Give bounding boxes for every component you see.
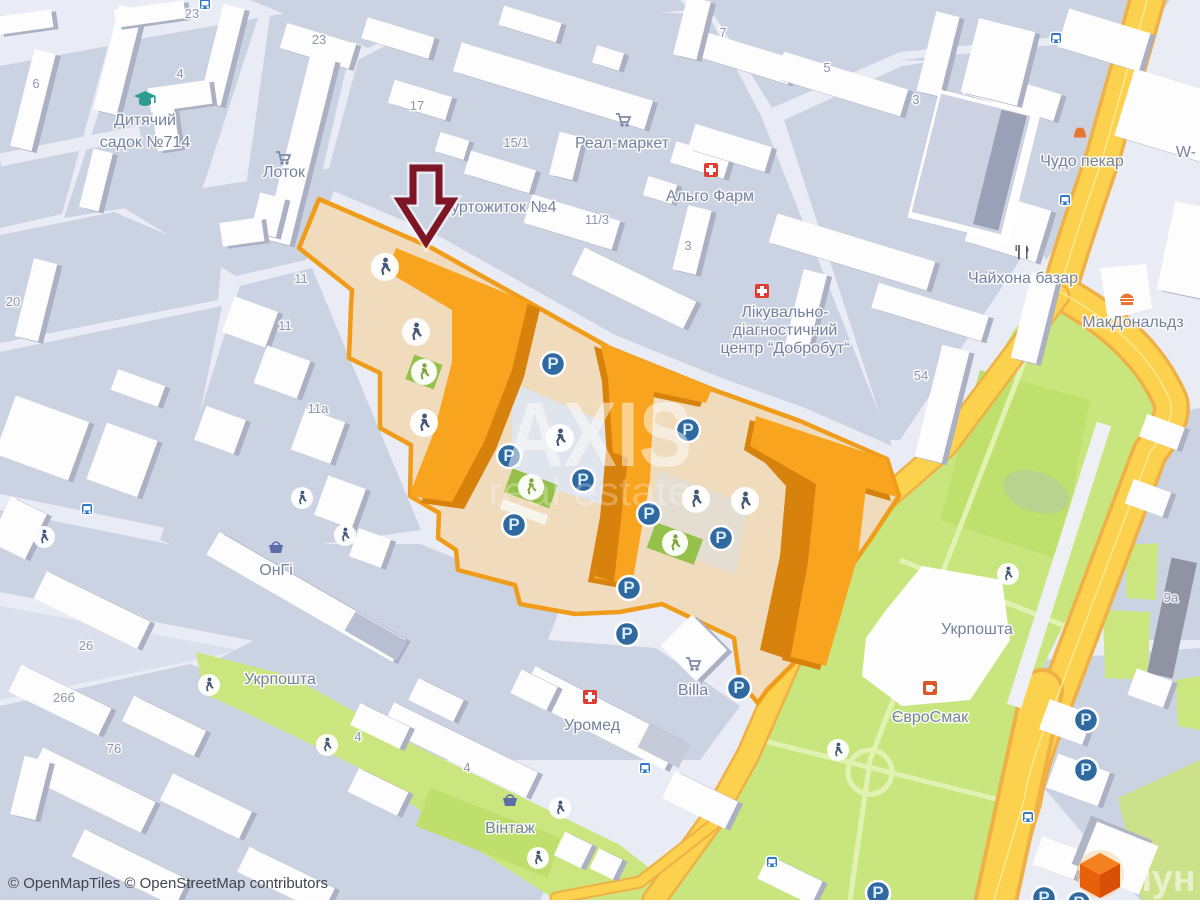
svg-text:W-: W-	[1176, 144, 1196, 161]
svg-text:4: 4	[176, 66, 183, 81]
svg-text:Чудо пекар: Чудо пекар	[1040, 153, 1124, 170]
svg-text:P: P	[1073, 893, 1084, 900]
svg-text:P: P	[715, 528, 726, 547]
svg-text:P: P	[623, 578, 634, 597]
svg-text:23: 23	[185, 6, 199, 21]
svg-text:Вінтаж: Вінтаж	[485, 820, 535, 837]
svg-text:P: P	[1080, 760, 1091, 779]
svg-text:садок №714: садок №714	[100, 134, 191, 151]
svg-text:7: 7	[719, 25, 726, 40]
svg-text:11: 11	[294, 271, 308, 286]
svg-text:P: P	[621, 624, 632, 643]
svg-text:4: 4	[463, 760, 470, 775]
svg-text:23: 23	[312, 32, 326, 47]
svg-text:Реал-маркет: Реал-маркет	[575, 135, 670, 152]
svg-text:54: 54	[914, 368, 928, 383]
svg-text:Гуртожиток №4: Гуртожиток №4	[443, 199, 556, 216]
svg-text:76: 76	[107, 741, 121, 756]
svg-text:діагностичний: діагностичний	[733, 322, 838, 339]
svg-text:P: P	[733, 678, 744, 697]
svg-text:11: 11	[278, 318, 292, 333]
svg-text:P: P	[547, 354, 558, 373]
svg-text:20: 20	[6, 294, 20, 309]
svg-text:Лоток: Лоток	[263, 164, 306, 181]
svg-text:15/1: 15/1	[503, 135, 528, 150]
svg-text:Billa: Billa	[678, 682, 708, 699]
svg-text:Уромед: Уромед	[564, 717, 621, 734]
svg-text:Лікувально-: Лікувально-	[741, 304, 828, 321]
svg-text:Укрпошта: Укрпошта	[941, 621, 1013, 638]
svg-text:центр “Добробут“: центр “Добробут“	[720, 340, 849, 357]
svg-text:P: P	[508, 515, 519, 534]
svg-text:real estate: real estate	[488, 470, 692, 514]
svg-text:Чайхона базар: Чайхона базар	[968, 270, 1078, 287]
svg-text:17: 17	[410, 98, 424, 113]
svg-text:26: 26	[79, 638, 93, 653]
svg-text:26б: 26б	[53, 690, 75, 705]
svg-text:P: P	[872, 883, 883, 900]
svg-text:3: 3	[912, 92, 919, 107]
svg-text:ЄвроСмак: ЄвроСмак	[892, 709, 969, 726]
svg-text:Дитячий: Дитячий	[114, 112, 176, 129]
svg-text:3: 3	[684, 238, 691, 253]
svg-text:ОнГі: ОнГі	[259, 562, 293, 579]
svg-text:лун: лун	[1128, 858, 1196, 900]
svg-text:11a: 11a	[308, 401, 329, 416]
svg-text:© OpenMapTiles © OpenStreetMap: © OpenMapTiles © OpenStreetMap contribut…	[8, 875, 328, 892]
svg-text:4: 4	[354, 729, 361, 744]
svg-text:P: P	[1080, 710, 1091, 729]
svg-text:6: 6	[32, 76, 39, 91]
svg-text:5: 5	[823, 60, 830, 75]
svg-text:Альго Фарм: Альго Фарм	[666, 188, 754, 205]
svg-text:P: P	[1038, 888, 1049, 900]
svg-text:Укрпошта: Укрпошта	[244, 671, 316, 688]
svg-text:МакДональдз: МакДональдз	[1082, 314, 1183, 331]
svg-text:9а: 9а	[1164, 590, 1179, 605]
svg-text:11/3: 11/3	[585, 212, 609, 227]
